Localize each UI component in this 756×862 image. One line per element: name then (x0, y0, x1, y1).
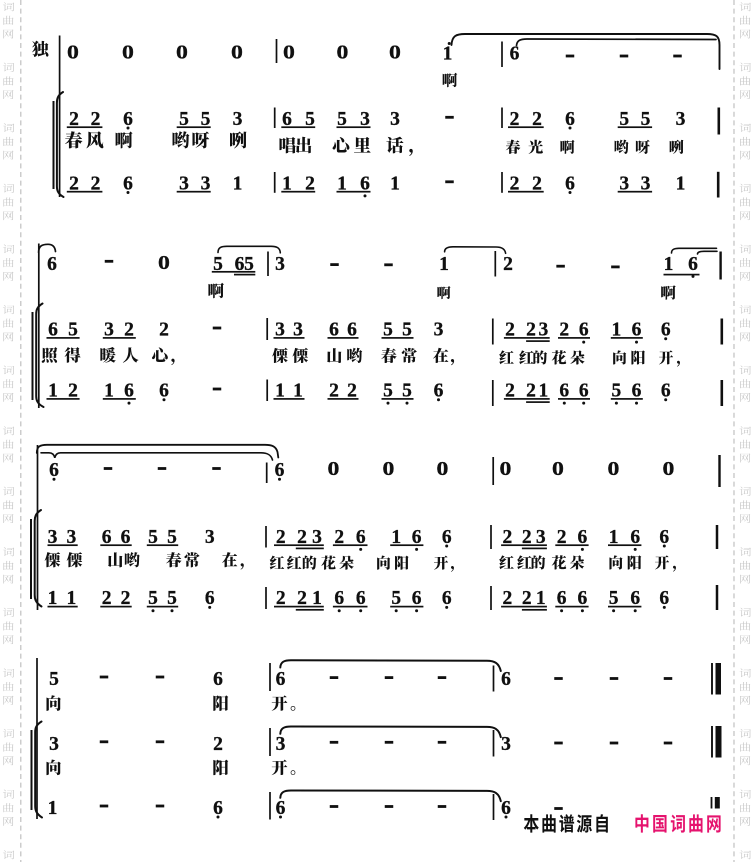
svg-text:1: 1 (48, 798, 58, 819)
svg-text:0: 0 (552, 458, 564, 480)
svg-text:6: 6 (47, 254, 57, 275)
svg-text:0: 0 (67, 41, 79, 63)
svg-text:1: 1 (443, 44, 453, 65)
svg-text:3: 3 (501, 734, 511, 755)
svg-text:6: 6 (276, 669, 286, 690)
svg-text:3: 3 (233, 109, 243, 130)
svg-text:0: 0 (337, 41, 349, 63)
svg-text:0: 0 (608, 458, 620, 480)
svg-text:6: 6 (688, 254, 698, 275)
svg-text:0: 0 (328, 458, 340, 480)
svg-text:3: 3 (205, 527, 215, 548)
svg-text:6: 6 (213, 669, 223, 690)
svg-text:0: 0 (389, 41, 401, 63)
svg-text:3: 3 (275, 254, 285, 275)
svg-text:0: 0 (383, 458, 395, 480)
svg-text:6: 6 (501, 669, 511, 690)
svg-text:1: 1 (664, 254, 674, 275)
svg-text:1: 1 (676, 173, 686, 194)
svg-text:0: 0 (663, 458, 675, 480)
svg-text:1: 1 (390, 173, 400, 194)
svg-text:0: 0 (231, 41, 243, 63)
svg-text:3: 3 (49, 734, 59, 755)
svg-text:2: 2 (213, 734, 223, 755)
svg-text:1: 1 (233, 173, 243, 194)
svg-text:0: 0 (283, 41, 295, 63)
svg-text:6: 6 (510, 44, 520, 65)
svg-text:3: 3 (276, 734, 286, 755)
svg-text:0: 0 (500, 458, 512, 480)
svg-text:2: 2 (503, 254, 513, 275)
svg-text:1: 1 (439, 254, 449, 275)
svg-text:0: 0 (158, 252, 170, 274)
svg-text:3: 3 (676, 109, 686, 130)
svg-text:3: 3 (390, 109, 400, 130)
svg-text:0: 0 (176, 41, 188, 63)
svg-text:0: 0 (437, 458, 449, 480)
svg-text:0: 0 (122, 41, 134, 63)
svg-text:5: 5 (49, 669, 59, 690)
svg-text:2: 2 (159, 320, 169, 341)
svg-text:3: 3 (434, 320, 444, 341)
